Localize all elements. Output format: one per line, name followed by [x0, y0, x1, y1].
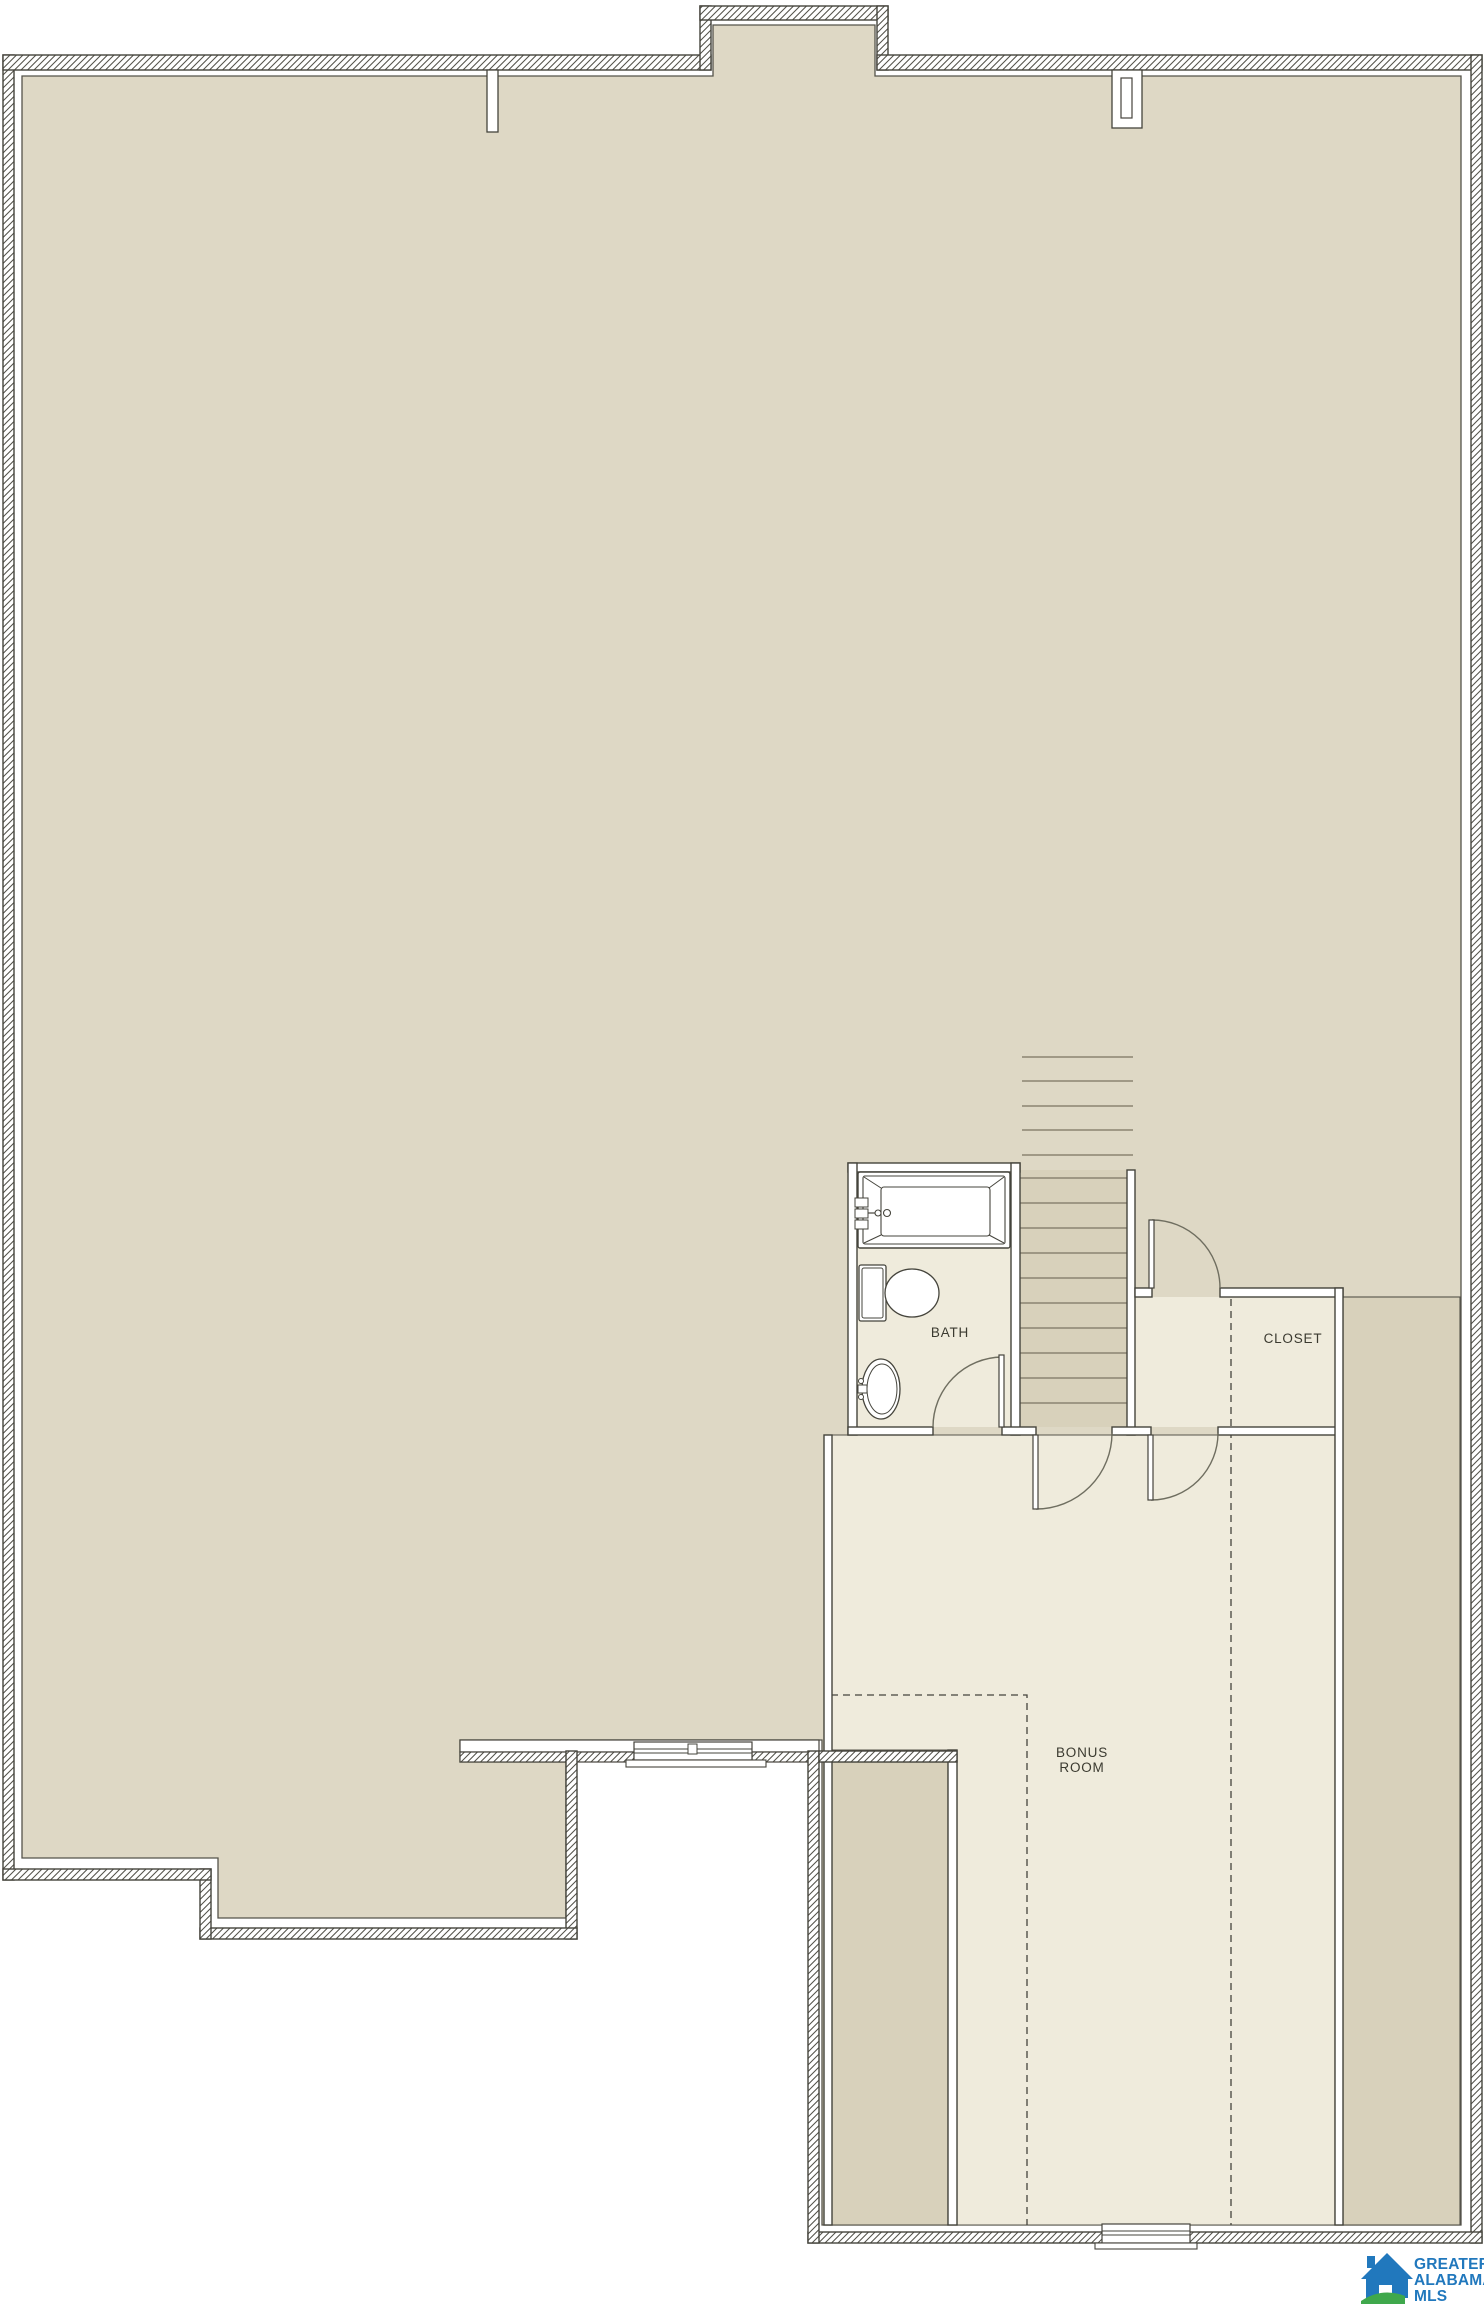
mls-logo-house-icon — [1361, 2253, 1413, 2304]
wall-stub-left — [487, 70, 498, 132]
window-bottom — [1102, 2224, 1190, 2243]
exterior-wall-notch-left — [566, 1751, 577, 1939]
mls-logo: GREATER ALABAMA MLS — [1361, 2253, 1484, 2304]
column-top-wall — [819, 1751, 957, 1762]
exterior-wall-top-right — [877, 55, 1482, 70]
chimney-bump-top-wall — [700, 6, 888, 20]
bonus-left-wall — [824, 1435, 832, 2225]
floor-plan-drawing: BATH CLOSET BONUS ROOM GREATER ALABAMA M… — [0, 0, 1484, 2304]
closet-label: CLOSET — [1264, 1331, 1323, 1346]
floor-plan-page: BATH CLOSET BONUS ROOM GREATER ALABAMA M… — [0, 0, 1484, 2304]
mls-logo-text: GREATER ALABAMA MLS — [1414, 2256, 1484, 2304]
closet-floor — [1135, 1297, 1335, 1427]
bath-bottom-wall-a — [848, 1427, 933, 1435]
exterior-wall-right — [1471, 55, 1482, 2243]
bathtub-icon — [855, 1172, 1010, 1248]
window-left-sill — [626, 1760, 766, 1767]
window-left-mullion — [688, 1744, 697, 1754]
bath-bottom-wall-b — [1002, 1427, 1036, 1435]
logo-text-line1: GREATER — [1414, 2256, 1484, 2273]
stair-run-fill — [1020, 1170, 1127, 1427]
bath-stair-wall — [1011, 1163, 1020, 1435]
closet-top-wall-b — [1220, 1288, 1343, 1297]
knee-wall-hatch-left — [460, 1752, 634, 1762]
bonus-top-wall-right — [1218, 1427, 1337, 1435]
attic-column-right — [1343, 1297, 1460, 2225]
logo-text-line3: MLS — [1414, 2288, 1447, 2304]
bonus-room-label-line2: ROOM — [1059, 1760, 1104, 1775]
flue-stub-inner — [1121, 78, 1132, 118]
exterior-wall-bottom-left — [3, 1869, 211, 1880]
bath-top-wall — [848, 1163, 1020, 1172]
closet-door-leaf — [1149, 1220, 1154, 1288]
exterior-wall-bottom-mid — [200, 1928, 577, 1939]
bath-door-leaf — [999, 1355, 1004, 1427]
exterior-wall-left — [3, 55, 14, 1880]
window-bottom-sill — [1095, 2243, 1197, 2249]
bonus-door-right-leaf — [1148, 1435, 1153, 1500]
logo-text-line2: ALABAMA — [1414, 2272, 1484, 2289]
toilet-icon — [859, 1265, 939, 1321]
closet-top-wall-a — [1135, 1288, 1152, 1297]
bonus-top-wall-pier — [1112, 1427, 1151, 1435]
column-right-wall — [948, 1750, 957, 2225]
bonus-room-label-line1: BONUS — [1056, 1745, 1108, 1760]
finished-rooms — [830, 1172, 1460, 2225]
bonus-door-left-leaf — [1033, 1435, 1038, 1509]
exterior-wall-top-left — [3, 55, 711, 70]
attic-column-left — [830, 1762, 948, 2225]
bonus-room-window — [1095, 2224, 1197, 2249]
bath-label: BATH — [931, 1325, 969, 1340]
closet-right-wall — [1335, 1288, 1343, 2225]
stair-right-wall — [1127, 1170, 1135, 1435]
exterior-wall-notch-right — [808, 1751, 819, 2243]
